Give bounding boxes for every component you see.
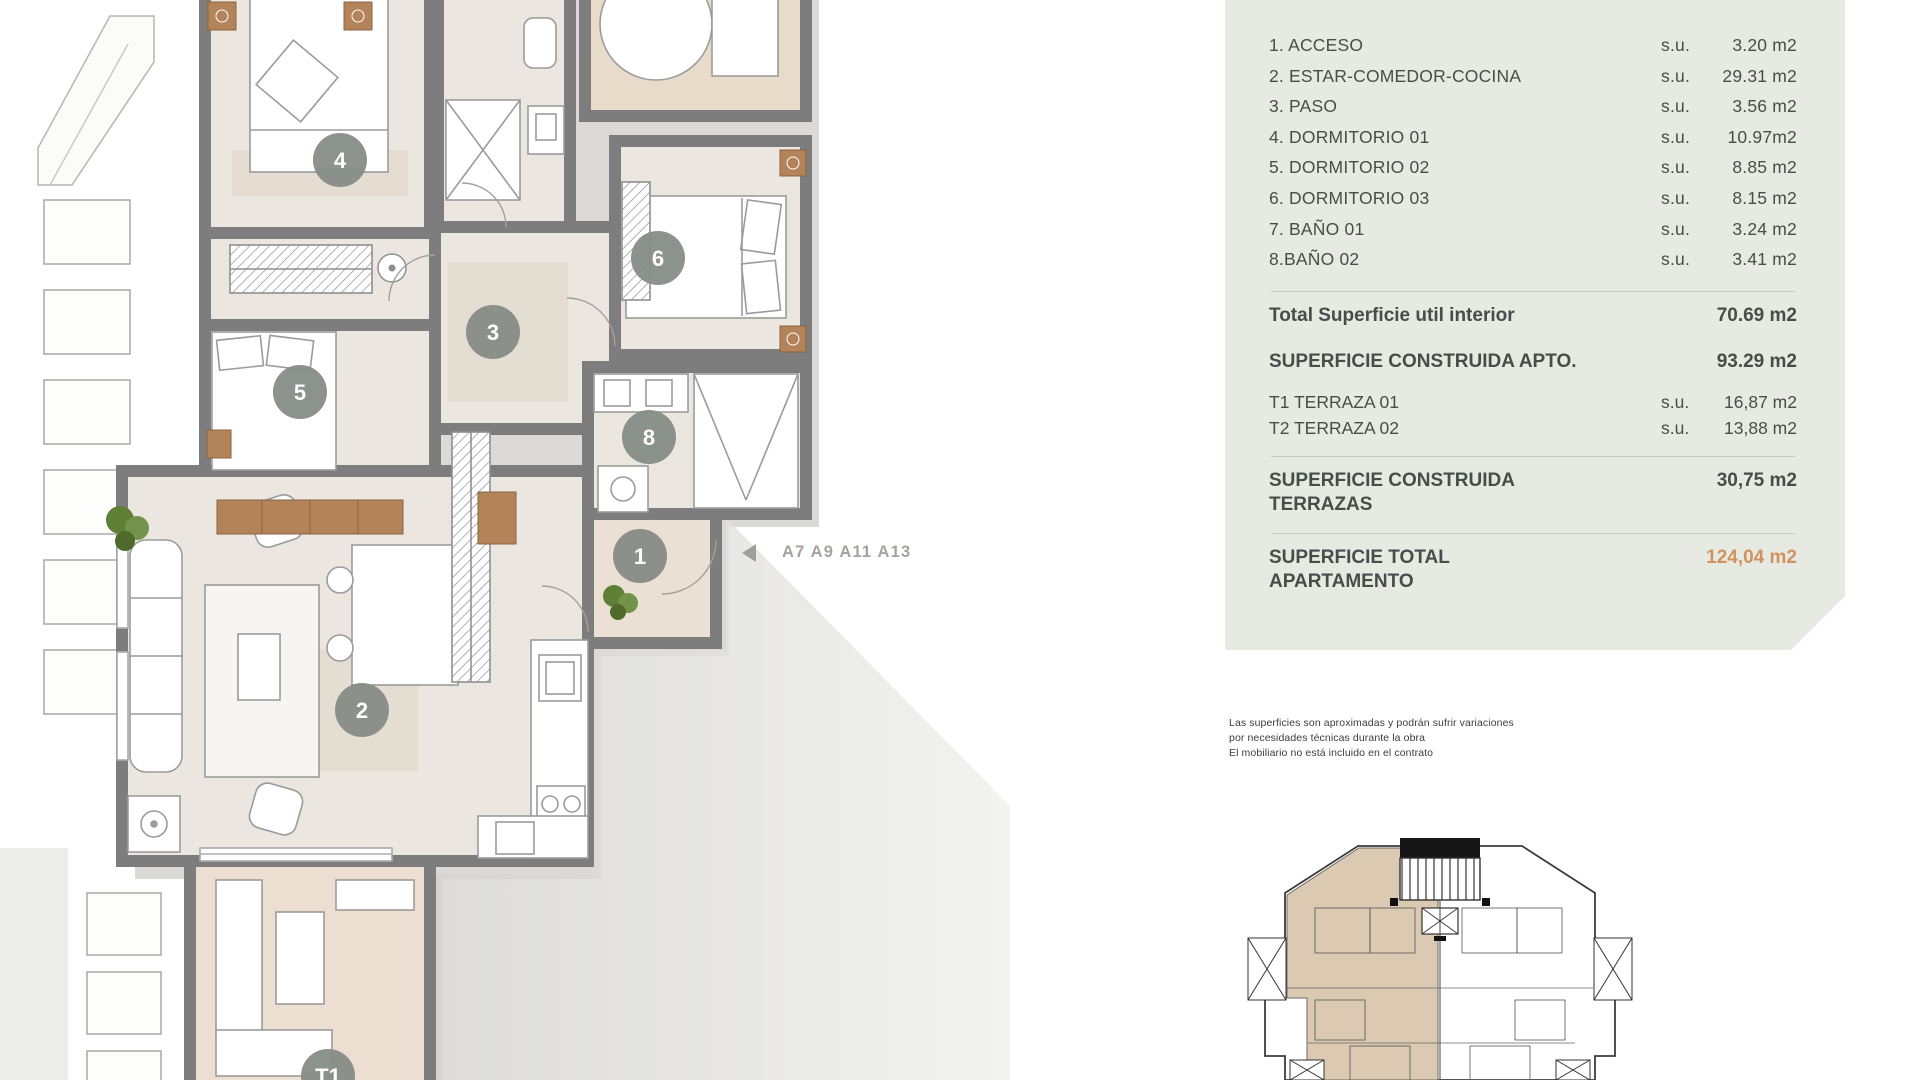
svg-text:T1: T1: [315, 1064, 341, 1080]
keyplan-balcony-right: [1594, 938, 1632, 1000]
svg-text:2: 2: [356, 698, 368, 723]
window: [117, 652, 128, 760]
legend-row: 1. ACCESOs.u.3.20 m2: [1269, 30, 1797, 61]
dining-chair: [327, 635, 353, 661]
pillow: [741, 260, 780, 313]
room-marker-3: 3: [466, 305, 520, 359]
outdoor-sofa: [216, 880, 262, 1034]
constructed-apto-row: SUPERFICIE CONSTRUIDA APTO. 93.29 m2: [1269, 350, 1797, 374]
coffee-table: [238, 634, 280, 700]
floor-plan: 4 6 3 5 8 1 2 T1: [0, 0, 1010, 1080]
legend-row: 8.BAÑO 02s.u.3.41 m2: [1269, 244, 1797, 275]
outdoor-bench: [336, 880, 414, 910]
divider: [1271, 291, 1795, 292]
keyplan-balcony-left: [1248, 938, 1286, 1000]
ceiling-lamp: [378, 254, 406, 282]
nightstand: [344, 2, 372, 30]
svg-text:6: 6: [652, 246, 664, 271]
room-marker-8: 8: [622, 410, 676, 464]
shower-bath8: [694, 374, 798, 508]
left-gutter: [0, 848, 68, 1080]
lounger-t2: [712, 0, 778, 76]
tall-cabinet: [478, 492, 516, 544]
svg-text:4: 4: [334, 148, 347, 173]
building-key-plan: [1230, 838, 1650, 1080]
dining-table: [352, 545, 458, 685]
svg-text:1: 1: [634, 544, 646, 569]
legend-panel: 1. ACCESOs.u.3.20 m2 2. ESTAR-COMEDOR-CO…: [1225, 0, 1845, 650]
total-apartamento-row: SUPERFICIE TOTAL APARTAMENTO 124,04 m2: [1269, 546, 1797, 594]
svg-text:8: 8: [643, 425, 655, 450]
keyplan-stairs: [1400, 858, 1480, 900]
room-marker-6: 6: [631, 231, 685, 285]
pillow: [266, 335, 313, 370]
terraza2-row: T2 TERRAZA 02 s.u. 13,88 m2: [1269, 416, 1797, 440]
nightstand: [207, 430, 231, 458]
disclaimer: Las superficies son aproximadas y podrán…: [1229, 716, 1514, 761]
legend-row: 7. BAÑO 01s.u.3.24 m2: [1269, 214, 1797, 245]
nightstand: [780, 326, 806, 352]
legend-row: 5. DORMITORIO 02s.u.8.85 m2: [1269, 152, 1797, 183]
dishwasher: [496, 822, 534, 854]
pillow: [741, 200, 782, 254]
left-arrow-icon: [742, 544, 756, 562]
neighbour-stairs-outline: [38, 16, 154, 185]
total-apartamento-value: 124,04 m2: [1706, 546, 1797, 570]
room-marker-2: 2: [335, 683, 389, 737]
nightstand: [780, 150, 806, 176]
divider: [1271, 533, 1795, 534]
legend-row: 2. ESTAR-COMEDOR-COCINAs.u.29.31 m2: [1269, 61, 1797, 92]
keyplan-core: [1400, 838, 1480, 858]
constructed-terrazas-row: SUPERFICIE CONSTRUIDA TERRAZAS 30,75 m2: [1269, 469, 1797, 517]
svg-text:5: 5: [294, 380, 306, 405]
divider: [1271, 456, 1795, 457]
legend-row: 4. DORMITORIO 01s.u.10.97m2: [1269, 122, 1797, 153]
unit-label: A7 A9 A11 A13: [742, 543, 911, 562]
legend-row: 6. DORMITORIO 03s.u.8.15 m2: [1269, 183, 1797, 214]
total-interior-row: Total Superficie util interior 70.69 m2: [1269, 304, 1797, 328]
svg-text:3: 3: [487, 320, 499, 345]
dining-chair: [327, 567, 353, 593]
room-marker-5: 5: [273, 365, 327, 419]
legend-row: 3. PASOs.u.3.56 m2: [1269, 91, 1797, 122]
pillow: [217, 336, 264, 370]
washing-machine: [598, 466, 648, 512]
neighbour-balconies-bottom: [87, 893, 161, 1080]
room-marker-4: 4: [313, 133, 367, 187]
terraza1-row: T1 TERRAZA 01 s.u. 16,87 m2: [1269, 390, 1797, 414]
outdoor-table: [276, 912, 324, 1004]
nightstand: [208, 2, 236, 30]
toilet-bath7: [524, 18, 556, 68]
room-marker-1: 1: [613, 529, 667, 583]
unit-label-text: A7 A9 A11 A13: [782, 543, 911, 562]
